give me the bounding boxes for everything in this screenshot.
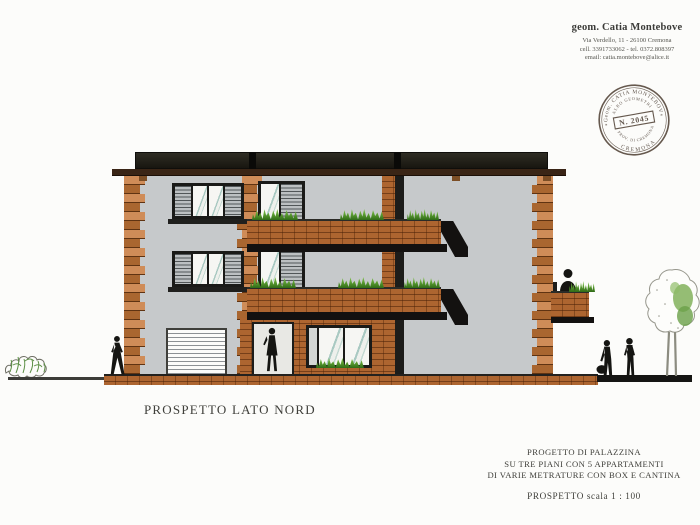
window-left-top-floor: [172, 183, 244, 219]
letterhead: geom. Catia Montebove Via Verdello, 11 -…: [556, 22, 698, 63]
project-line-2: SU TRE PIANI CON 5 APPARTAMENTI: [462, 459, 700, 471]
professional-stamp: Geom. CATIA MONTEBOVE ALBO GEOMETRI N. 2…: [591, 77, 677, 163]
side-balcony-parapet: [551, 291, 589, 317]
project-line-3: DI VARIE METRATURE CON BOX E CANTINA: [462, 470, 700, 482]
roof-corbel: [139, 176, 147, 181]
window-pane: [193, 186, 207, 216]
bush-sketch: [3, 339, 53, 377]
scale-label: PROSPETTO scala 1 : 100: [462, 491, 700, 501]
brick-pier-upper: [382, 176, 396, 222]
letterhead-email: email: catia.montebove@alice.it: [556, 54, 698, 63]
window-pane: [209, 254, 223, 284]
window-pane: [319, 328, 343, 365]
side-balcony-slab: [551, 317, 594, 323]
window-shutter: [175, 186, 191, 216]
window-shutter: [175, 254, 191, 284]
roof-corbel: [543, 176, 551, 181]
window-shutter: [225, 254, 241, 284]
scanned-drawing-sheet: geom. Catia Montebove Via Verdello, 11 -…: [0, 0, 700, 525]
window-pane: [193, 254, 207, 284]
structural-column: [395, 176, 404, 378]
window-pane-sliver: [309, 328, 317, 365]
window-left-middle-floor: [172, 251, 244, 287]
person-entrance-figure: [259, 327, 285, 373]
tree-sketch: [645, 268, 700, 378]
stamp-ornament-right: *: [660, 113, 664, 119]
roof-divider: [394, 152, 401, 169]
balcony-slab-middle: [247, 312, 447, 320]
window-shutter: [225, 186, 241, 216]
project-line-1: PROGETTO DI PALAZZINA: [462, 447, 700, 459]
letterhead-name: geom. Catia Montebove: [556, 22, 698, 33]
ground-line-left: [8, 377, 104, 380]
drawing-title: PROSPETTO LATO NORD: [144, 402, 316, 418]
roof-corbel: [452, 176, 460, 181]
balcony-parapet-middle: [247, 287, 441, 312]
brick-quoin-right: [537, 176, 553, 378]
ground-brick-strip: [104, 374, 598, 385]
roof-divider: [249, 152, 256, 169]
stamp-ornament-left: *: [605, 123, 609, 129]
flat-roof-band: [135, 152, 548, 169]
person-standing: [619, 338, 640, 378]
entrance-opening: [252, 322, 294, 377]
brick-pier-middle: [382, 248, 396, 290]
letterhead-address: Via Verdello, 11 - 26100 Cremona: [556, 37, 698, 46]
garage-roller-door: [166, 328, 227, 376]
balcony-parapet-top: [247, 219, 441, 244]
person-walking-left: [107, 335, 127, 377]
window-pane: [345, 328, 369, 365]
balcony-slab-top: [247, 244, 447, 252]
letterhead-phone: cell. 3391733062 - tel. 0372.808397: [556, 46, 698, 55]
title-block: PROGETTO DI PALAZZINA SU TRE PIANI CON 5…: [462, 447, 700, 501]
roof-fascia: [112, 169, 566, 176]
window-pane: [209, 186, 223, 216]
person-with-bag: [594, 340, 618, 378]
